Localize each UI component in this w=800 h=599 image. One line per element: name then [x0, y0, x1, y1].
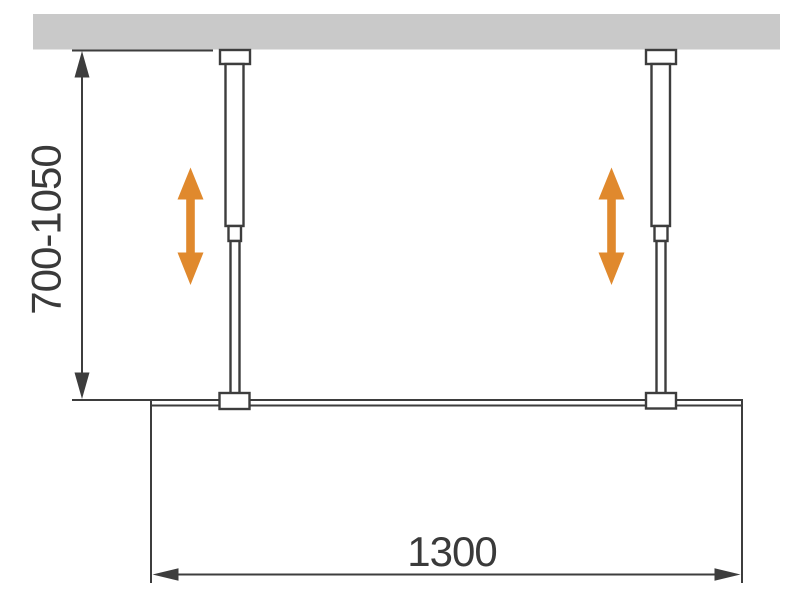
arrowhead-left-icon — [153, 568, 179, 581]
lower-rod — [657, 241, 666, 395]
width-dimension: 1300 — [153, 528, 741, 581]
arrowhead-right-icon — [715, 568, 741, 581]
width-dimension-label: 1300 — [407, 528, 496, 575]
vertical-dimension: 700-1050 — [23, 51, 214, 400]
arrowhead-down-icon — [75, 373, 90, 400]
arrowhead-up-icon — [75, 51, 90, 78]
vertical-dimension-label: 700-1050 — [23, 145, 70, 315]
lower-rod — [231, 241, 240, 395]
adjustment-collar — [655, 226, 668, 241]
ceiling — [33, 14, 780, 50]
diagram-canvas: 700-1050 — [0, 0, 800, 599]
upper-tube — [226, 64, 244, 226]
support-rod-right — [646, 50, 676, 409]
height-adjust-arrow-right-icon — [599, 168, 625, 286]
glass-clamp — [646, 393, 676, 409]
ceiling-bracket — [646, 50, 676, 64]
height-adjust-arrow-left-icon — [178, 168, 204, 286]
installation-diagram: 700-1050 — [0, 0, 800, 599]
adjustment-collar — [229, 226, 242, 241]
upper-tube — [652, 64, 671, 226]
glass-clamp — [220, 393, 250, 409]
support-rod-left — [220, 50, 251, 409]
ceiling-bracket — [220, 50, 250, 64]
